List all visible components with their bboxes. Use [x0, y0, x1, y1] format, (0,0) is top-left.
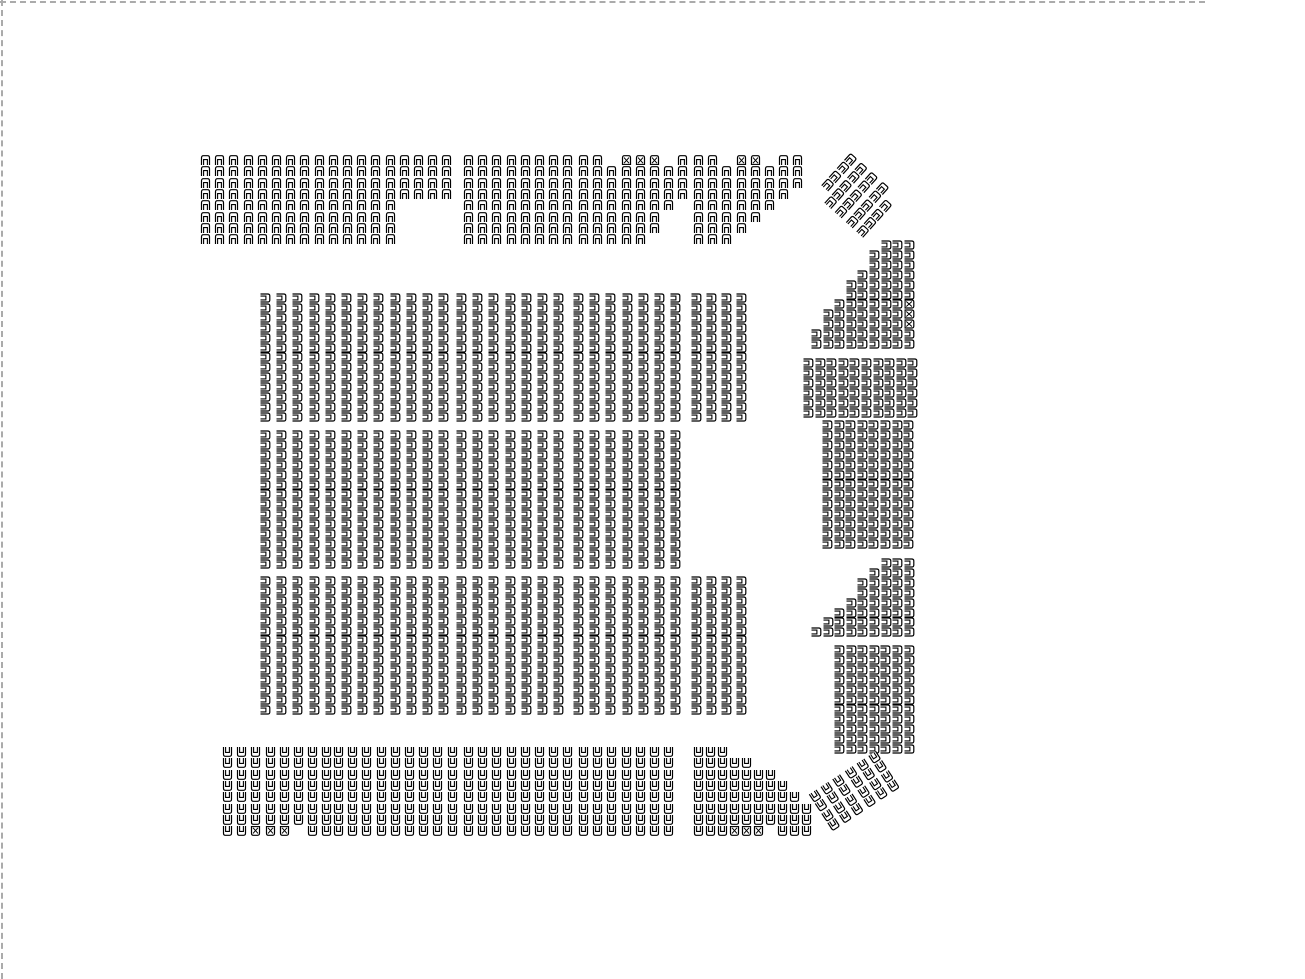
seat-icon[interactable]	[314, 178, 325, 188]
seat-icon[interactable]	[562, 212, 573, 222]
seat-icon[interactable]	[562, 200, 573, 210]
seat-icon[interactable]	[663, 758, 674, 768]
seat-icon[interactable]	[477, 770, 488, 780]
seat-icon[interactable]	[707, 178, 718, 188]
seat-icon[interactable]	[456, 705, 467, 715]
seat-icon[interactable]	[606, 770, 617, 780]
seat-icon[interactable]	[200, 166, 211, 176]
seat-icon[interactable]	[721, 166, 732, 176]
seat-icon[interactable]	[736, 402, 747, 412]
seat-icon[interactable]	[765, 804, 776, 814]
seat-icon[interactable]	[260, 460, 271, 470]
seat-icon[interactable]	[328, 223, 339, 233]
seat-icon[interactable]	[260, 549, 271, 559]
seat-icon[interactable]	[390, 539, 401, 549]
seat-icon[interactable]	[904, 675, 915, 685]
seat-icon[interactable]	[357, 529, 368, 539]
seat-icon[interactable]	[390, 529, 401, 539]
seat-icon[interactable]	[553, 333, 564, 343]
seat-icon[interactable]	[506, 804, 517, 814]
seat-icon[interactable]	[361, 792, 372, 802]
seat-icon[interactable]	[663, 804, 674, 814]
seat-icon[interactable]	[750, 178, 761, 188]
seat-icon[interactable]	[341, 549, 352, 559]
seat-icon[interactable]	[463, 770, 474, 780]
seat-icon[interactable]	[520, 212, 531, 222]
seat-icon[interactable]	[578, 758, 589, 768]
seat-icon[interactable]	[553, 695, 564, 705]
seat-icon[interactable]	[307, 804, 318, 814]
seat-icon[interactable]	[706, 303, 717, 313]
seat-icon[interactable]	[881, 260, 892, 270]
seat-icon[interactable]	[341, 430, 352, 440]
seat-icon[interactable]	[677, 189, 688, 199]
seat-icon[interactable]	[265, 770, 276, 780]
seat-icon[interactable]	[537, 470, 548, 480]
seat-icon[interactable]	[670, 440, 681, 450]
seat-icon[interactable]	[736, 675, 747, 685]
seat-icon[interactable]	[321, 758, 332, 768]
seat-icon[interactable]	[427, 155, 438, 165]
seat-icon[interactable]	[321, 781, 332, 791]
seat-icon[interactable]	[693, 234, 704, 244]
seat-icon[interactable]	[309, 293, 320, 303]
seat-icon[interactable]	[553, 539, 564, 549]
seat-icon[interactable]	[357, 313, 368, 323]
seat-icon[interactable]	[325, 606, 336, 616]
seat-icon[interactable]	[589, 323, 600, 333]
seat-icon[interactable]	[721, 576, 732, 586]
seat-icon[interactable]	[406, 529, 417, 539]
seat-icon[interactable]	[670, 539, 681, 549]
seat-icon[interactable]	[472, 576, 483, 586]
seat-icon[interactable]	[670, 402, 681, 412]
seat-icon[interactable]	[447, 815, 458, 825]
seat-icon[interactable]	[881, 270, 892, 280]
seat-icon[interactable]	[670, 576, 681, 586]
seat-icon[interactable]	[520, 792, 531, 802]
seat-icon[interactable]	[873, 378, 884, 388]
seat-icon[interactable]	[606, 781, 617, 791]
seat-icon[interactable]	[491, 758, 502, 768]
seat-icon[interactable]	[691, 586, 702, 596]
seat-icon[interactable]	[573, 549, 584, 559]
seat-icon[interactable]	[592, 189, 603, 199]
seat-icon[interactable]	[621, 166, 632, 176]
seat-icon[interactable]	[432, 747, 443, 757]
seat-icon[interactable]	[845, 519, 856, 529]
seat-icon[interactable]	[670, 303, 681, 313]
seat-icon[interactable]	[621, 747, 632, 757]
seat-icon[interactable]	[638, 303, 649, 313]
seat-icon[interactable]	[488, 586, 499, 596]
seat-icon[interactable]	[521, 392, 532, 402]
seat-icon[interactable]	[869, 598, 880, 608]
seat-icon[interactable]	[292, 333, 303, 343]
seat-icon[interactable]	[846, 685, 857, 695]
seat-icon[interactable]	[404, 804, 415, 814]
seat-icon[interactable]	[314, 166, 325, 176]
seat-icon[interactable]	[589, 695, 600, 705]
seat-icon[interactable]	[265, 804, 276, 814]
seat-icon[interactable]	[505, 616, 516, 626]
seat-icon[interactable]	[706, 293, 717, 303]
seat-icon[interactable]	[573, 705, 584, 715]
seat-icon[interactable]	[463, 189, 474, 199]
seat-icon[interactable]	[488, 392, 499, 402]
seat-icon[interactable]	[521, 470, 532, 480]
seat-icon[interactable]	[592, 826, 603, 836]
seat-icon[interactable]	[325, 529, 336, 539]
seat-icon[interactable]	[562, 758, 573, 768]
seat-icon[interactable]	[236, 747, 247, 757]
seat-icon[interactable]	[903, 539, 914, 549]
seat-icon[interactable]	[406, 559, 417, 569]
seat-icon[interactable]	[907, 408, 918, 418]
seat-icon[interactable]	[884, 388, 895, 398]
seat-icon[interactable]	[815, 388, 826, 398]
seat-icon[interactable]	[390, 450, 401, 460]
seat-icon[interactable]	[638, 450, 649, 460]
seat-icon[interactable]	[861, 358, 872, 368]
seat-icon[interactable]	[373, 333, 384, 343]
wheelchair-seat-icon[interactable]	[741, 826, 752, 836]
seat-icon[interactable]	[881, 240, 892, 250]
seat-icon[interactable]	[606, 826, 617, 836]
seat-icon[interactable]	[422, 293, 433, 303]
seat-icon[interactable]	[904, 627, 915, 637]
seat-icon[interactable]	[553, 392, 564, 402]
seat-icon[interactable]	[649, 747, 660, 757]
seat-icon[interactable]	[506, 747, 517, 757]
seat-icon[interactable]	[553, 430, 564, 440]
seat-icon[interactable]	[521, 539, 532, 549]
seat-icon[interactable]	[857, 519, 868, 529]
seat-icon[interactable]	[406, 293, 417, 303]
seat-icon[interactable]	[520, 747, 531, 757]
seat-icon[interactable]	[857, 440, 868, 450]
seat-icon[interactable]	[654, 402, 665, 412]
seat-icon[interactable]	[622, 596, 633, 606]
seat-icon[interactable]	[721, 606, 732, 616]
seat-icon[interactable]	[736, 166, 747, 176]
seat-icon[interactable]	[548, 189, 559, 199]
seat-icon[interactable]	[341, 460, 352, 470]
seat-icon[interactable]	[537, 392, 548, 402]
seat-icon[interactable]	[857, 339, 868, 349]
seat-icon[interactable]	[341, 303, 352, 313]
seat-icon[interactable]	[717, 804, 728, 814]
seat-icon[interactable]	[373, 539, 384, 549]
seat-icon[interactable]	[390, 392, 401, 402]
seat-icon[interactable]	[373, 293, 384, 303]
seat-icon[interactable]	[892, 519, 903, 529]
seat-icon[interactable]	[333, 747, 344, 757]
seat-icon[interactable]	[347, 770, 358, 780]
seat-icon[interactable]	[896, 368, 907, 378]
seat-icon[interactable]	[765, 815, 776, 825]
seat-icon[interactable]	[463, 758, 474, 768]
seat-icon[interactable]	[904, 578, 915, 588]
seat-icon[interactable]	[390, 695, 401, 705]
seat-icon[interactable]	[845, 420, 856, 430]
seat-icon[interactable]	[406, 705, 417, 715]
seat-icon[interactable]	[292, 440, 303, 450]
seat-icon[interactable]	[521, 685, 532, 695]
seat-icon[interactable]	[622, 586, 633, 596]
seat-icon[interactable]	[706, 705, 717, 715]
seat-icon[interactable]	[325, 586, 336, 596]
seat-icon[interactable]	[370, 200, 381, 210]
seat-icon[interactable]	[422, 586, 433, 596]
seat-icon[interactable]	[562, 815, 573, 825]
seat-icon[interactable]	[670, 685, 681, 695]
seat-icon[interactable]	[314, 212, 325, 222]
seat-icon[interactable]	[491, 747, 502, 757]
seat-icon[interactable]	[822, 430, 833, 440]
seat-icon[interactable]	[370, 166, 381, 176]
seat-icon[interactable]	[309, 675, 320, 685]
seat-icon[interactable]	[638, 460, 649, 470]
seat-icon[interactable]	[357, 430, 368, 440]
seat-icon[interactable]	[792, 166, 803, 176]
seat-icon[interactable]	[717, 747, 728, 757]
seat-icon[interactable]	[621, 770, 632, 780]
seat-icon[interactable]	[803, 378, 814, 388]
seat-icon[interactable]	[621, 804, 632, 814]
seat-icon[interactable]	[521, 675, 532, 685]
seat-icon[interactable]	[521, 333, 532, 343]
seat-icon[interactable]	[822, 440, 833, 450]
seat-icon[interactable]	[834, 460, 845, 470]
seat-icon[interactable]	[635, 200, 646, 210]
seat-icon[interactable]	[693, 155, 704, 165]
seat-icon[interactable]	[605, 596, 616, 606]
seat-icon[interactable]	[357, 549, 368, 559]
seat-icon[interactable]	[670, 470, 681, 480]
seat-icon[interactable]	[721, 223, 732, 233]
seat-icon[interactable]	[314, 234, 325, 244]
seat-icon[interactable]	[553, 460, 564, 470]
seat-icon[interactable]	[548, 200, 559, 210]
seat-icon[interactable]	[325, 460, 336, 470]
seat-icon[interactable]	[907, 398, 918, 408]
seat-icon[interactable]	[488, 675, 499, 685]
seat-icon[interactable]	[892, 588, 903, 598]
seat-icon[interactable]	[589, 675, 600, 685]
seat-icon[interactable]	[729, 804, 740, 814]
seat-icon[interactable]	[307, 792, 318, 802]
seat-icon[interactable]	[271, 178, 282, 188]
seat-icon[interactable]	[276, 576, 287, 586]
seat-icon[interactable]	[649, 781, 660, 791]
seat-icon[interactable]	[505, 586, 516, 596]
seat-icon[interactable]	[456, 392, 467, 402]
seat-icon[interactable]	[896, 408, 907, 418]
seat-icon[interactable]	[649, 178, 660, 188]
seat-icon[interactable]	[777, 792, 788, 802]
seat-icon[interactable]	[309, 596, 320, 606]
seat-icon[interactable]	[606, 234, 617, 244]
seat-icon[interactable]	[361, 770, 372, 780]
seat-icon[interactable]	[488, 576, 499, 586]
seat-icon[interactable]	[260, 539, 271, 549]
seat-icon[interactable]	[548, 792, 559, 802]
seat-icon[interactable]	[472, 559, 483, 569]
seat-icon[interactable]	[438, 705, 449, 715]
seat-icon[interactable]	[505, 705, 516, 715]
seat-icon[interactable]	[553, 559, 564, 569]
seat-icon[interactable]	[649, 758, 660, 768]
seat-icon[interactable]	[654, 596, 665, 606]
seat-icon[interactable]	[260, 293, 271, 303]
seat-icon[interactable]	[573, 596, 584, 606]
seat-icon[interactable]	[562, 166, 573, 176]
seat-icon[interactable]	[691, 392, 702, 402]
seat-icon[interactable]	[849, 388, 860, 398]
seat-icon[interactable]	[705, 747, 716, 757]
seat-icon[interactable]	[534, 189, 545, 199]
seat-icon[interactable]	[721, 212, 732, 222]
seat-icon[interactable]	[422, 392, 433, 402]
seat-icon[interactable]	[736, 313, 747, 323]
seat-icon[interactable]	[265, 781, 276, 791]
seat-icon[interactable]	[635, 189, 646, 199]
seat-icon[interactable]	[357, 606, 368, 616]
seat-icon[interactable]	[903, 460, 914, 470]
seat-icon[interactable]	[868, 420, 879, 430]
seat-icon[interactable]	[222, 815, 233, 825]
seat-icon[interactable]	[621, 758, 632, 768]
seat-icon[interactable]	[764, 200, 775, 210]
seat-icon[interactable]	[592, 815, 603, 825]
seat-icon[interactable]	[638, 695, 649, 705]
seat-icon[interactable]	[406, 616, 417, 626]
seat-icon[interactable]	[562, 792, 573, 802]
seat-icon[interactable]	[592, 200, 603, 210]
seat-icon[interactable]	[706, 695, 717, 705]
seat-icon[interactable]	[705, 826, 716, 836]
seat-icon[interactable]	[822, 539, 833, 549]
seat-icon[interactable]	[654, 392, 665, 402]
seat-icon[interactable]	[789, 815, 800, 825]
seat-icon[interactable]	[438, 470, 449, 480]
seat-icon[interactable]	[822, 420, 833, 430]
seat-icon[interactable]	[537, 616, 548, 626]
seat-icon[interactable]	[325, 313, 336, 323]
seat-icon[interactable]	[670, 333, 681, 343]
seat-icon[interactable]	[849, 398, 860, 408]
seat-icon[interactable]	[390, 770, 401, 780]
seat-icon[interactable]	[849, 408, 860, 418]
seat-icon[interactable]	[279, 792, 290, 802]
seat-icon[interactable]	[803, 388, 814, 398]
seat-icon[interactable]	[432, 770, 443, 780]
seat-icon[interactable]	[638, 323, 649, 333]
seat-icon[interactable]	[606, 747, 617, 757]
seat-icon[interactable]	[765, 781, 776, 791]
seat-icon[interactable]	[472, 685, 483, 695]
seat-icon[interactable]	[789, 826, 800, 836]
seat-icon[interactable]	[292, 559, 303, 569]
seat-icon[interactable]	[413, 189, 424, 199]
seat-icon[interactable]	[390, 826, 401, 836]
seat-icon[interactable]	[534, 166, 545, 176]
seat-icon[interactable]	[880, 460, 891, 470]
seat-icon[interactable]	[309, 685, 320, 695]
seat-icon[interactable]	[257, 189, 268, 199]
seat-icon[interactable]	[904, 240, 915, 250]
seat-icon[interactable]	[357, 323, 368, 333]
seat-icon[interactable]	[521, 460, 532, 470]
seat-icon[interactable]	[404, 758, 415, 768]
seat-icon[interactable]	[691, 303, 702, 313]
seat-icon[interactable]	[373, 430, 384, 440]
seat-icon[interactable]	[869, 627, 880, 637]
seat-icon[interactable]	[299, 223, 310, 233]
seat-icon[interactable]	[356, 155, 367, 165]
seat-icon[interactable]	[592, 747, 603, 757]
seat-icon[interactable]	[573, 539, 584, 549]
seat-icon[interactable]	[418, 770, 429, 780]
seat-icon[interactable]	[562, 189, 573, 199]
seat-icon[interactable]	[721, 313, 732, 323]
seat-icon[interactable]	[765, 770, 776, 780]
seat-icon[interactable]	[276, 333, 287, 343]
seat-icon[interactable]	[826, 378, 837, 388]
seat-icon[interactable]	[826, 398, 837, 408]
seat-icon[interactable]	[706, 586, 717, 596]
seat-icon[interactable]	[463, 166, 474, 176]
seat-icon[interactable]	[869, 675, 880, 685]
seat-icon[interactable]	[413, 166, 424, 176]
seat-icon[interactable]	[838, 388, 849, 398]
seat-icon[interactable]	[488, 470, 499, 480]
seat-icon[interactable]	[341, 606, 352, 616]
seat-icon[interactable]	[506, 758, 517, 768]
seat-icon[interactable]	[857, 598, 868, 608]
seat-icon[interactable]	[736, 200, 747, 210]
seat-icon[interactable]	[892, 250, 903, 260]
seat-icon[interactable]	[521, 695, 532, 705]
seat-icon[interactable]	[477, 166, 488, 176]
seat-icon[interactable]	[605, 313, 616, 323]
seat-icon[interactable]	[276, 470, 287, 480]
seat-icon[interactable]	[803, 398, 814, 408]
seat-icon[interactable]	[621, 781, 632, 791]
seat-icon[interactable]	[537, 596, 548, 606]
seat-icon[interactable]	[741, 770, 752, 780]
seat-icon[interactable]	[214, 166, 225, 176]
seat-icon[interactable]	[573, 675, 584, 685]
seat-icon[interactable]	[456, 576, 467, 586]
seat-icon[interactable]	[250, 815, 261, 825]
seat-icon[interactable]	[370, 189, 381, 199]
seat-icon[interactable]	[342, 178, 353, 188]
seat-icon[interactable]	[257, 178, 268, 188]
seat-icon[interactable]	[693, 804, 704, 814]
seat-icon[interactable]	[325, 705, 336, 715]
seat-icon[interactable]	[693, 178, 704, 188]
seat-icon[interactable]	[553, 705, 564, 715]
seat-icon[interactable]	[385, 166, 396, 176]
seat-icon[interactable]	[670, 695, 681, 705]
seat-icon[interactable]	[801, 804, 812, 814]
seat-icon[interactable]	[638, 586, 649, 596]
seat-icon[interactable]	[520, 758, 531, 768]
seat-icon[interactable]	[406, 586, 417, 596]
seat-icon[interactable]	[406, 576, 417, 586]
